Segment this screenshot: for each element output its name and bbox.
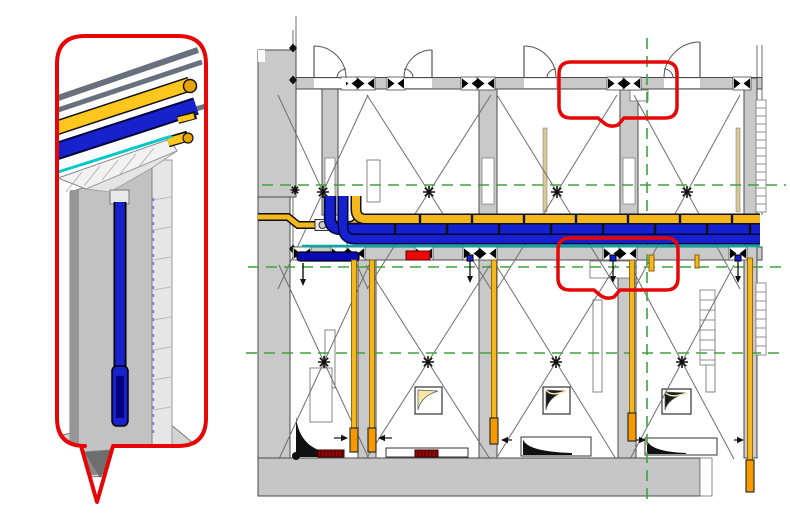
grid-star-marker	[550, 356, 562, 368]
pipe-bracket	[110, 190, 129, 204]
wall-riser-pipe	[630, 260, 635, 415]
hanger-tick	[654, 225, 656, 234]
stud-rect	[593, 300, 602, 392]
wall-break-symbol	[733, 77, 751, 90]
plan-fixture	[662, 389, 691, 414]
door-opening	[404, 79, 432, 89]
stud-rect	[310, 368, 332, 422]
blocking-strips	[543, 128, 740, 212]
ladder-symbol	[756, 283, 766, 355]
grid-star-marker	[423, 186, 435, 198]
blocking-strip	[736, 128, 740, 212]
drop-arrow	[300, 279, 306, 286]
wall-riser-tip	[746, 460, 754, 492]
door-opening	[524, 79, 556, 89]
pipe-drop-symbol	[467, 255, 473, 283]
hanger-tick	[749, 225, 751, 234]
gas-pipe-main	[356, 196, 760, 219]
wall-riser-pipe	[352, 260, 357, 430]
clash-element-red	[406, 251, 430, 260]
door-arc	[664, 42, 700, 78]
pipe-runs	[258, 196, 760, 286]
hanger-tick	[498, 225, 500, 234]
wall-riser-pipe	[748, 258, 753, 462]
wall-riser-tip	[368, 428, 376, 452]
grid-star-marker	[291, 186, 300, 195]
pipe-stub	[695, 255, 699, 268]
wall-riser-tip	[490, 418, 498, 444]
dim-arrow-head	[501, 437, 508, 443]
lower-corridor-wall	[296, 247, 762, 260]
hanger-tick	[471, 215, 473, 223]
dim-arrow-head	[737, 437, 744, 443]
plan-fixture	[543, 387, 570, 414]
riser-sleeve-core	[116, 376, 124, 418]
door-swing	[314, 46, 346, 88]
gas-stub-cap	[183, 133, 193, 143]
hanger-tick	[550, 225, 552, 234]
wall-face	[70, 166, 152, 453]
grid-star-marker	[676, 356, 688, 368]
baseboard-heater	[415, 450, 438, 457]
drawing-canvas	[0, 0, 790, 519]
stud-rect	[367, 160, 380, 202]
highlight-callout	[559, 62, 677, 126]
hanger-tick	[731, 215, 733, 223]
hanger-tick	[706, 225, 708, 234]
door-opening	[664, 79, 700, 89]
hanger-tick	[394, 225, 396, 234]
stud-column	[152, 160, 172, 450]
dim-arrow-head	[341, 435, 348, 441]
wall-riser-tip	[628, 413, 636, 441]
wall-riser-tip	[350, 428, 358, 452]
grid-star-marker	[681, 186, 693, 198]
baseboard-heater	[318, 450, 344, 457]
grid-star-marker	[318, 356, 330, 368]
hanger-tick	[419, 215, 421, 223]
hanger-tick	[679, 215, 681, 223]
hanger-tick	[575, 215, 577, 223]
coordination-drawing	[0, 0, 790, 519]
plan-fixture	[415, 387, 442, 414]
door-arc-small	[664, 69, 673, 78]
dim-arrow-head	[378, 435, 385, 441]
left-lower-wall	[258, 197, 290, 458]
wall-riser-pipe	[492, 260, 497, 420]
door-arc	[524, 46, 556, 78]
wall-break-symbol	[387, 77, 405, 90]
gas-stub-3d	[178, 116, 194, 120]
column-node	[292, 452, 300, 460]
hanger-tick	[627, 215, 629, 223]
wall-riser-pipe	[370, 260, 375, 430]
detail-callout-3d	[54, 36, 206, 502]
hanger-tick	[602, 225, 604, 234]
plan-fixtures	[415, 387, 691, 414]
hanger-tick	[523, 215, 525, 223]
wall-edge	[70, 190, 79, 453]
grid-star-marker	[551, 186, 563, 198]
pipe-drop-bar	[297, 252, 359, 261]
pipe-drop-symbol	[735, 255, 741, 283]
door-arc	[314, 46, 346, 78]
gas-pipe-cap	[184, 80, 197, 93]
door-swing	[664, 42, 700, 88]
baseboard-heaters	[318, 450, 438, 457]
left-wing-wall	[258, 50, 296, 197]
door-swing	[524, 46, 556, 88]
ladder-symbol	[756, 100, 766, 212]
door-swing	[404, 50, 432, 88]
bottom-wall	[258, 458, 700, 496]
door-opening	[314, 79, 346, 89]
pipe-stub	[649, 255, 654, 271]
grid-star-marker	[422, 356, 434, 368]
hanger-tick	[446, 225, 448, 234]
door-arc	[404, 50, 432, 78]
